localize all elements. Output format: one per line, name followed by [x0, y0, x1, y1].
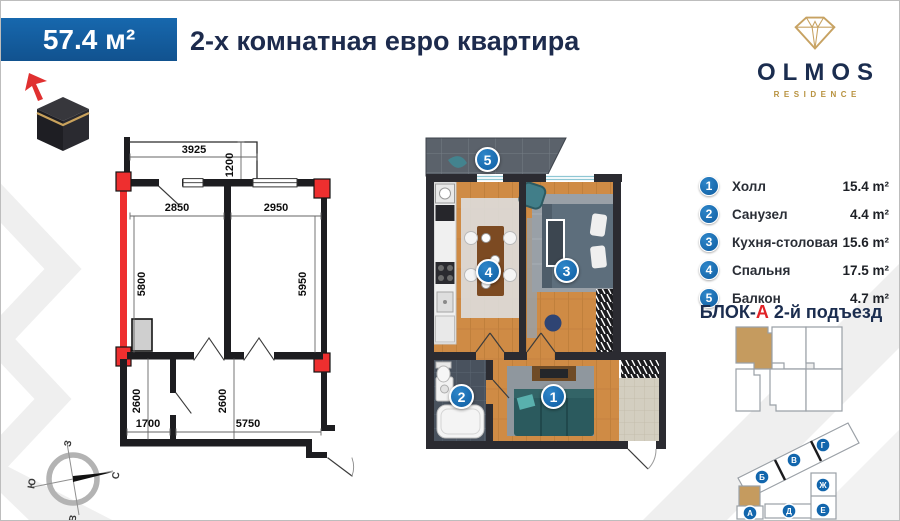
legend-item: 3 Кухня-столовая 15.6 m²	[699, 228, 889, 256]
flyer-canvas: 57.4 м² 2-х комнатная евро квартира OLMO…	[0, 0, 900, 521]
area-badge: 57.4 м²	[1, 18, 177, 61]
furnished-floor-plan: 5 4 3 1 2	[414, 134, 682, 490]
compass: З Ю С В	[21, 435, 125, 521]
brand-tagline: RESIDENCE	[752, 90, 884, 99]
diamond-icon	[786, 13, 844, 53]
room-badge-hall: 1	[541, 384, 566, 409]
compass-east-label: В	[67, 514, 79, 521]
dim-label-hall-height: 2600	[217, 389, 229, 413]
legend-room-label: Санузел	[732, 207, 788, 222]
dim-label-hall-width: 5750	[236, 418, 260, 430]
entry-wardrobe	[621, 360, 659, 378]
room-badge-kitchen: 3	[554, 258, 579, 283]
dining-set	[461, 198, 521, 318]
room-badge-balcony: 5	[475, 147, 500, 172]
highlighted-site-block	[739, 486, 760, 508]
legend-number-badge: 2	[699, 204, 719, 224]
block-letter: А	[756, 302, 769, 322]
location-cube-icon	[23, 69, 103, 153]
dim-label-balcony-width: 3925	[182, 144, 206, 156]
legend-number-badge: 1	[699, 176, 719, 196]
entry-floor	[619, 378, 659, 441]
site-block-badge-zh: Ж	[818, 481, 827, 490]
compass-north-label: С	[110, 471, 122, 480]
legend-room-area: 17.5 m²	[842, 263, 889, 278]
vent-shaft	[132, 319, 152, 351]
dim-label-bath-width: 1700	[136, 418, 160, 430]
dim-label-left-room-width: 2850	[165, 202, 189, 214]
furnished-plan-drawing	[414, 134, 682, 490]
olmos-logo: OLMOS RESIDENCE	[747, 13, 883, 99]
block-title: БЛОК-А 2-й подъезд	[691, 302, 891, 323]
site-block-badge-g: Г	[821, 441, 826, 450]
dim-label-right-room-width: 2950	[264, 202, 288, 214]
dim-label-left-room-height: 5800	[136, 272, 148, 296]
site-block-badge-e: Е	[820, 506, 826, 515]
legend-number-badge: 4	[699, 260, 719, 280]
legend-room-area: 15.6 m²	[842, 235, 889, 250]
legend-item: 2 Санузел 4.4 m²	[699, 200, 889, 228]
technical-floor-plan: 3925 1200	[107, 129, 371, 493]
site-block-badge-v: В	[791, 456, 797, 465]
compass-south-label: Ю	[26, 478, 39, 490]
cube-icon	[37, 97, 89, 151]
legend-number-badge: 3	[699, 232, 719, 252]
block-title-prefix: БЛОК-	[700, 302, 756, 322]
site-block-badge-a: А	[747, 509, 753, 518]
site-plan: Б В Г А Д Е Ж	[723, 418, 893, 520]
legend-room-label: Кухня-столовая	[732, 235, 838, 250]
red-arrow-icon	[25, 73, 47, 101]
dim-label-balcony-depth: 1200	[224, 153, 236, 177]
legend: 1 Холл 15.4 m² 2 Санузел 4.4 m² 3 Кухня-…	[699, 172, 889, 312]
legend-room-label: Спальня	[732, 263, 790, 278]
legend-room-area: 15.4 m²	[842, 179, 889, 194]
compass-needle	[73, 472, 113, 482]
page-title: 2-х комнатная евро квартира	[190, 26, 579, 57]
room-badge-bathroom: 2	[449, 384, 474, 409]
block-plate-diagram	[730, 323, 848, 415]
legend-room-area: 4.4 m²	[850, 207, 889, 222]
red-load-wall	[120, 179, 127, 366]
legend-item: 1 Холл 15.4 m²	[699, 172, 889, 200]
compass-west-label: З	[63, 440, 75, 448]
site-block-badge-d: Д	[786, 507, 792, 516]
legend-item: 4 Спальня 17.5 m²	[699, 256, 889, 284]
site-block-badge-b: Б	[759, 473, 765, 482]
highlighted-unit	[736, 327, 772, 369]
legend-room-label: Холл	[732, 179, 766, 194]
dim-label-bath-height: 2600	[131, 389, 143, 413]
block-title-suffix: 2-й подъезд	[769, 302, 882, 322]
room-badge-bedroom: 4	[476, 259, 501, 284]
dim-label-right-room-height: 5950	[297, 272, 309, 296]
brand-name: OLMOS	[754, 59, 883, 87]
kitchen-counter	[434, 182, 456, 344]
